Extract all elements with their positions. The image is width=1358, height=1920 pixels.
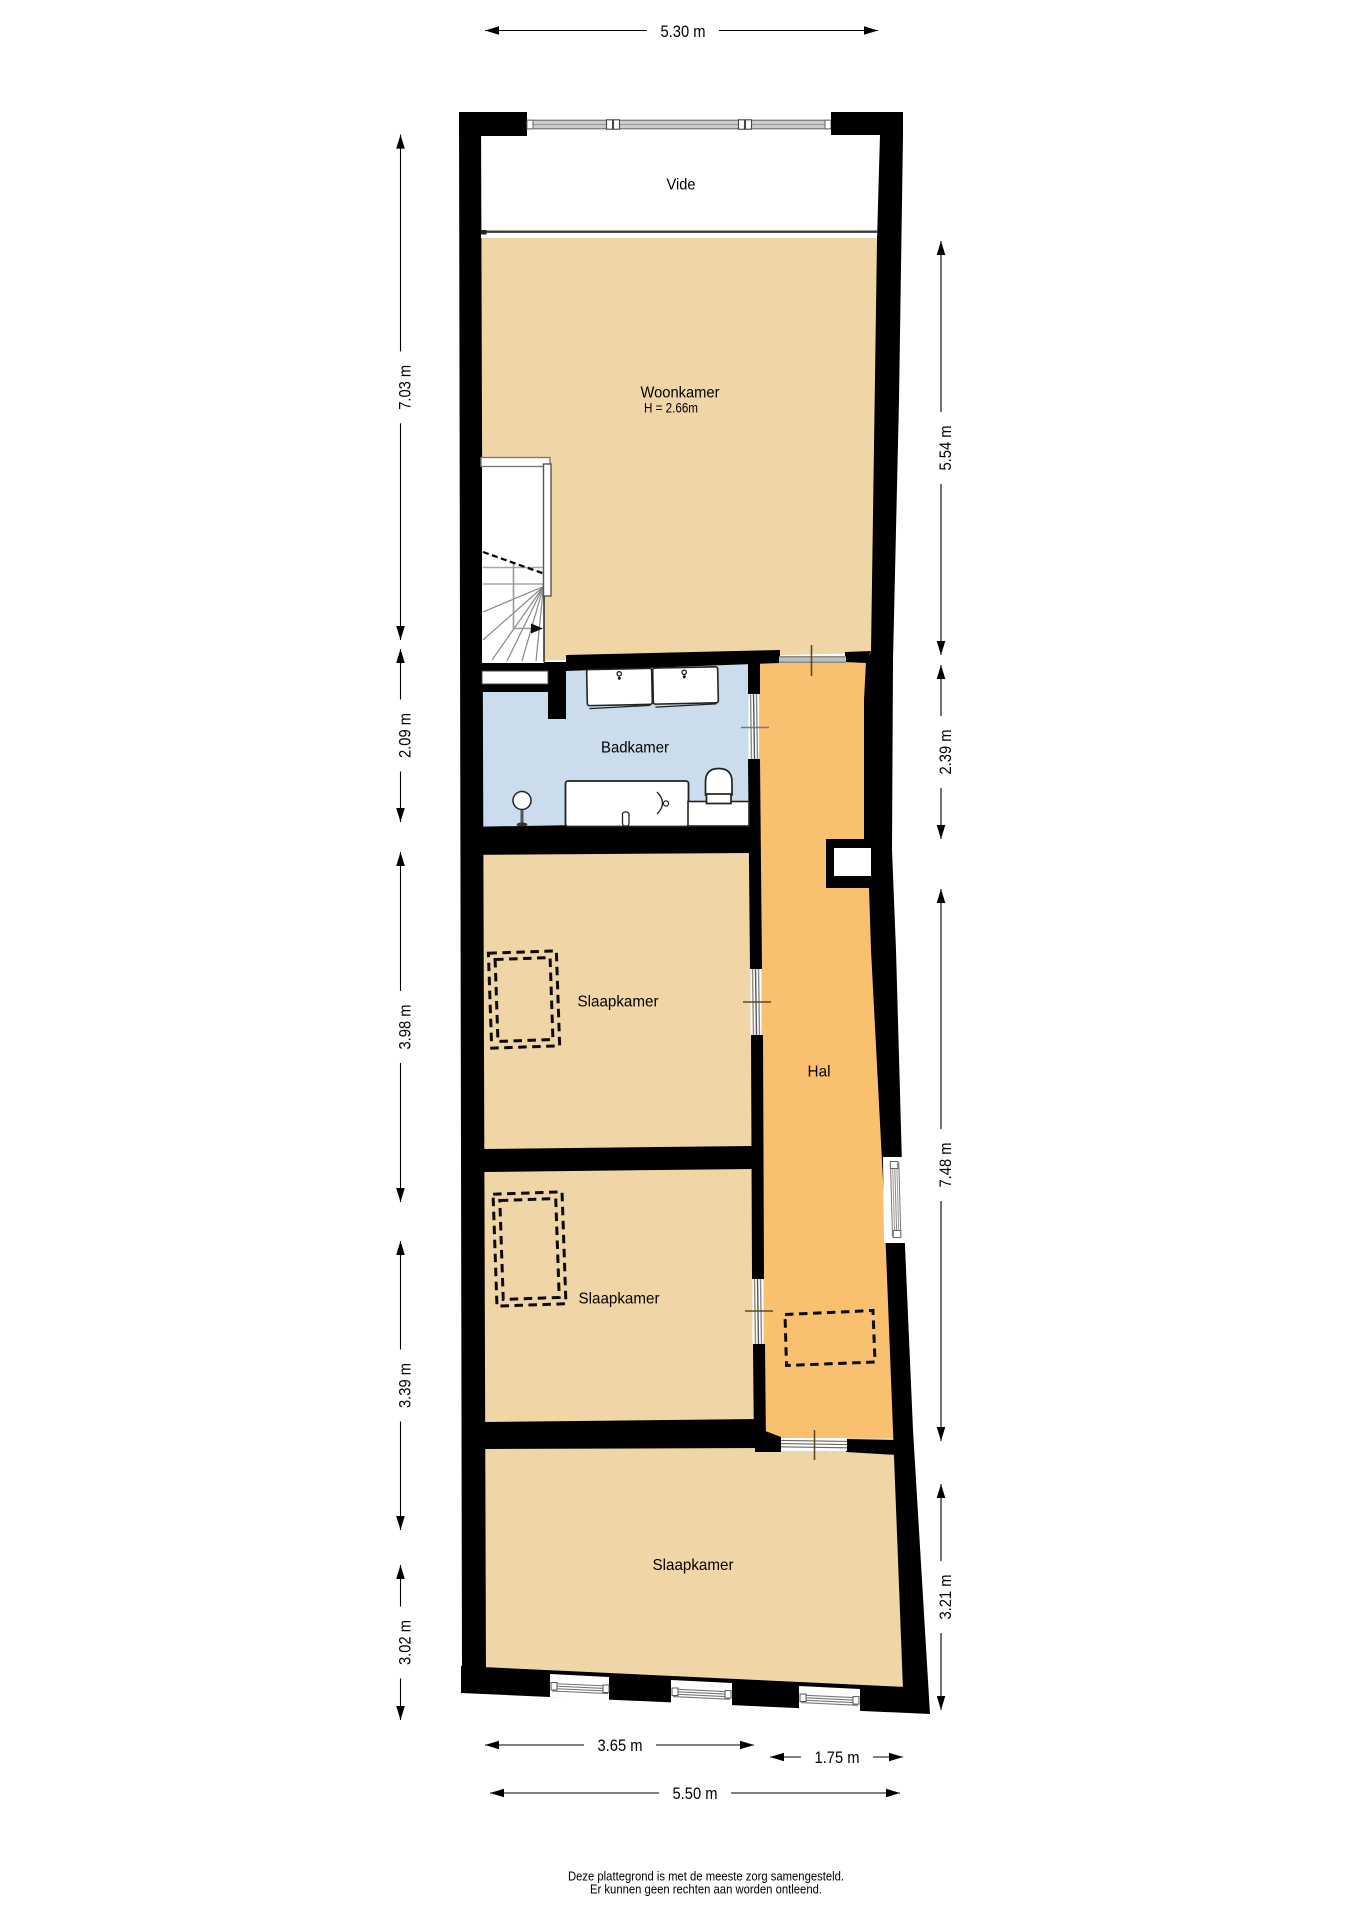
svg-text:Er kunnen geen rechten aan wor: Er kunnen geen rechten aan worden ontlee… xyxy=(590,1882,822,1897)
svg-text:3.39 m: 3.39 m xyxy=(396,1363,415,1408)
svg-text:Badkamer: Badkamer xyxy=(601,740,670,757)
svg-text:3.65 m: 3.65 m xyxy=(598,1736,643,1755)
svg-text:H = 2.66m: H = 2.66m xyxy=(644,401,698,416)
svg-text:Slaapkamer: Slaapkamer xyxy=(653,1557,735,1574)
svg-text:5.54 m: 5.54 m xyxy=(936,426,955,471)
svg-text:Hal: Hal xyxy=(808,1064,831,1081)
svg-text:2.09 m: 2.09 m xyxy=(396,713,415,758)
svg-text:7.48 m: 7.48 m xyxy=(936,1143,955,1188)
svg-text:3.02 m: 3.02 m xyxy=(396,1620,415,1665)
svg-text:Woonkamer: Woonkamer xyxy=(641,385,721,402)
svg-text:5.50 m: 5.50 m xyxy=(673,1784,718,1803)
svg-text:5.30 m: 5.30 m xyxy=(661,22,706,41)
svg-text:3.21 m: 3.21 m xyxy=(936,1575,955,1620)
svg-text:1.75 m: 1.75 m xyxy=(815,1748,860,1767)
svg-text:Vide: Vide xyxy=(667,177,696,194)
svg-text:3.98 m: 3.98 m xyxy=(396,1005,415,1050)
svg-text:Slaapkamer: Slaapkamer xyxy=(579,1291,661,1308)
svg-text:2.39 m: 2.39 m xyxy=(936,730,955,775)
svg-text:7.03 m: 7.03 m xyxy=(396,365,415,410)
svg-text:Slaapkamer: Slaapkamer xyxy=(578,994,660,1011)
